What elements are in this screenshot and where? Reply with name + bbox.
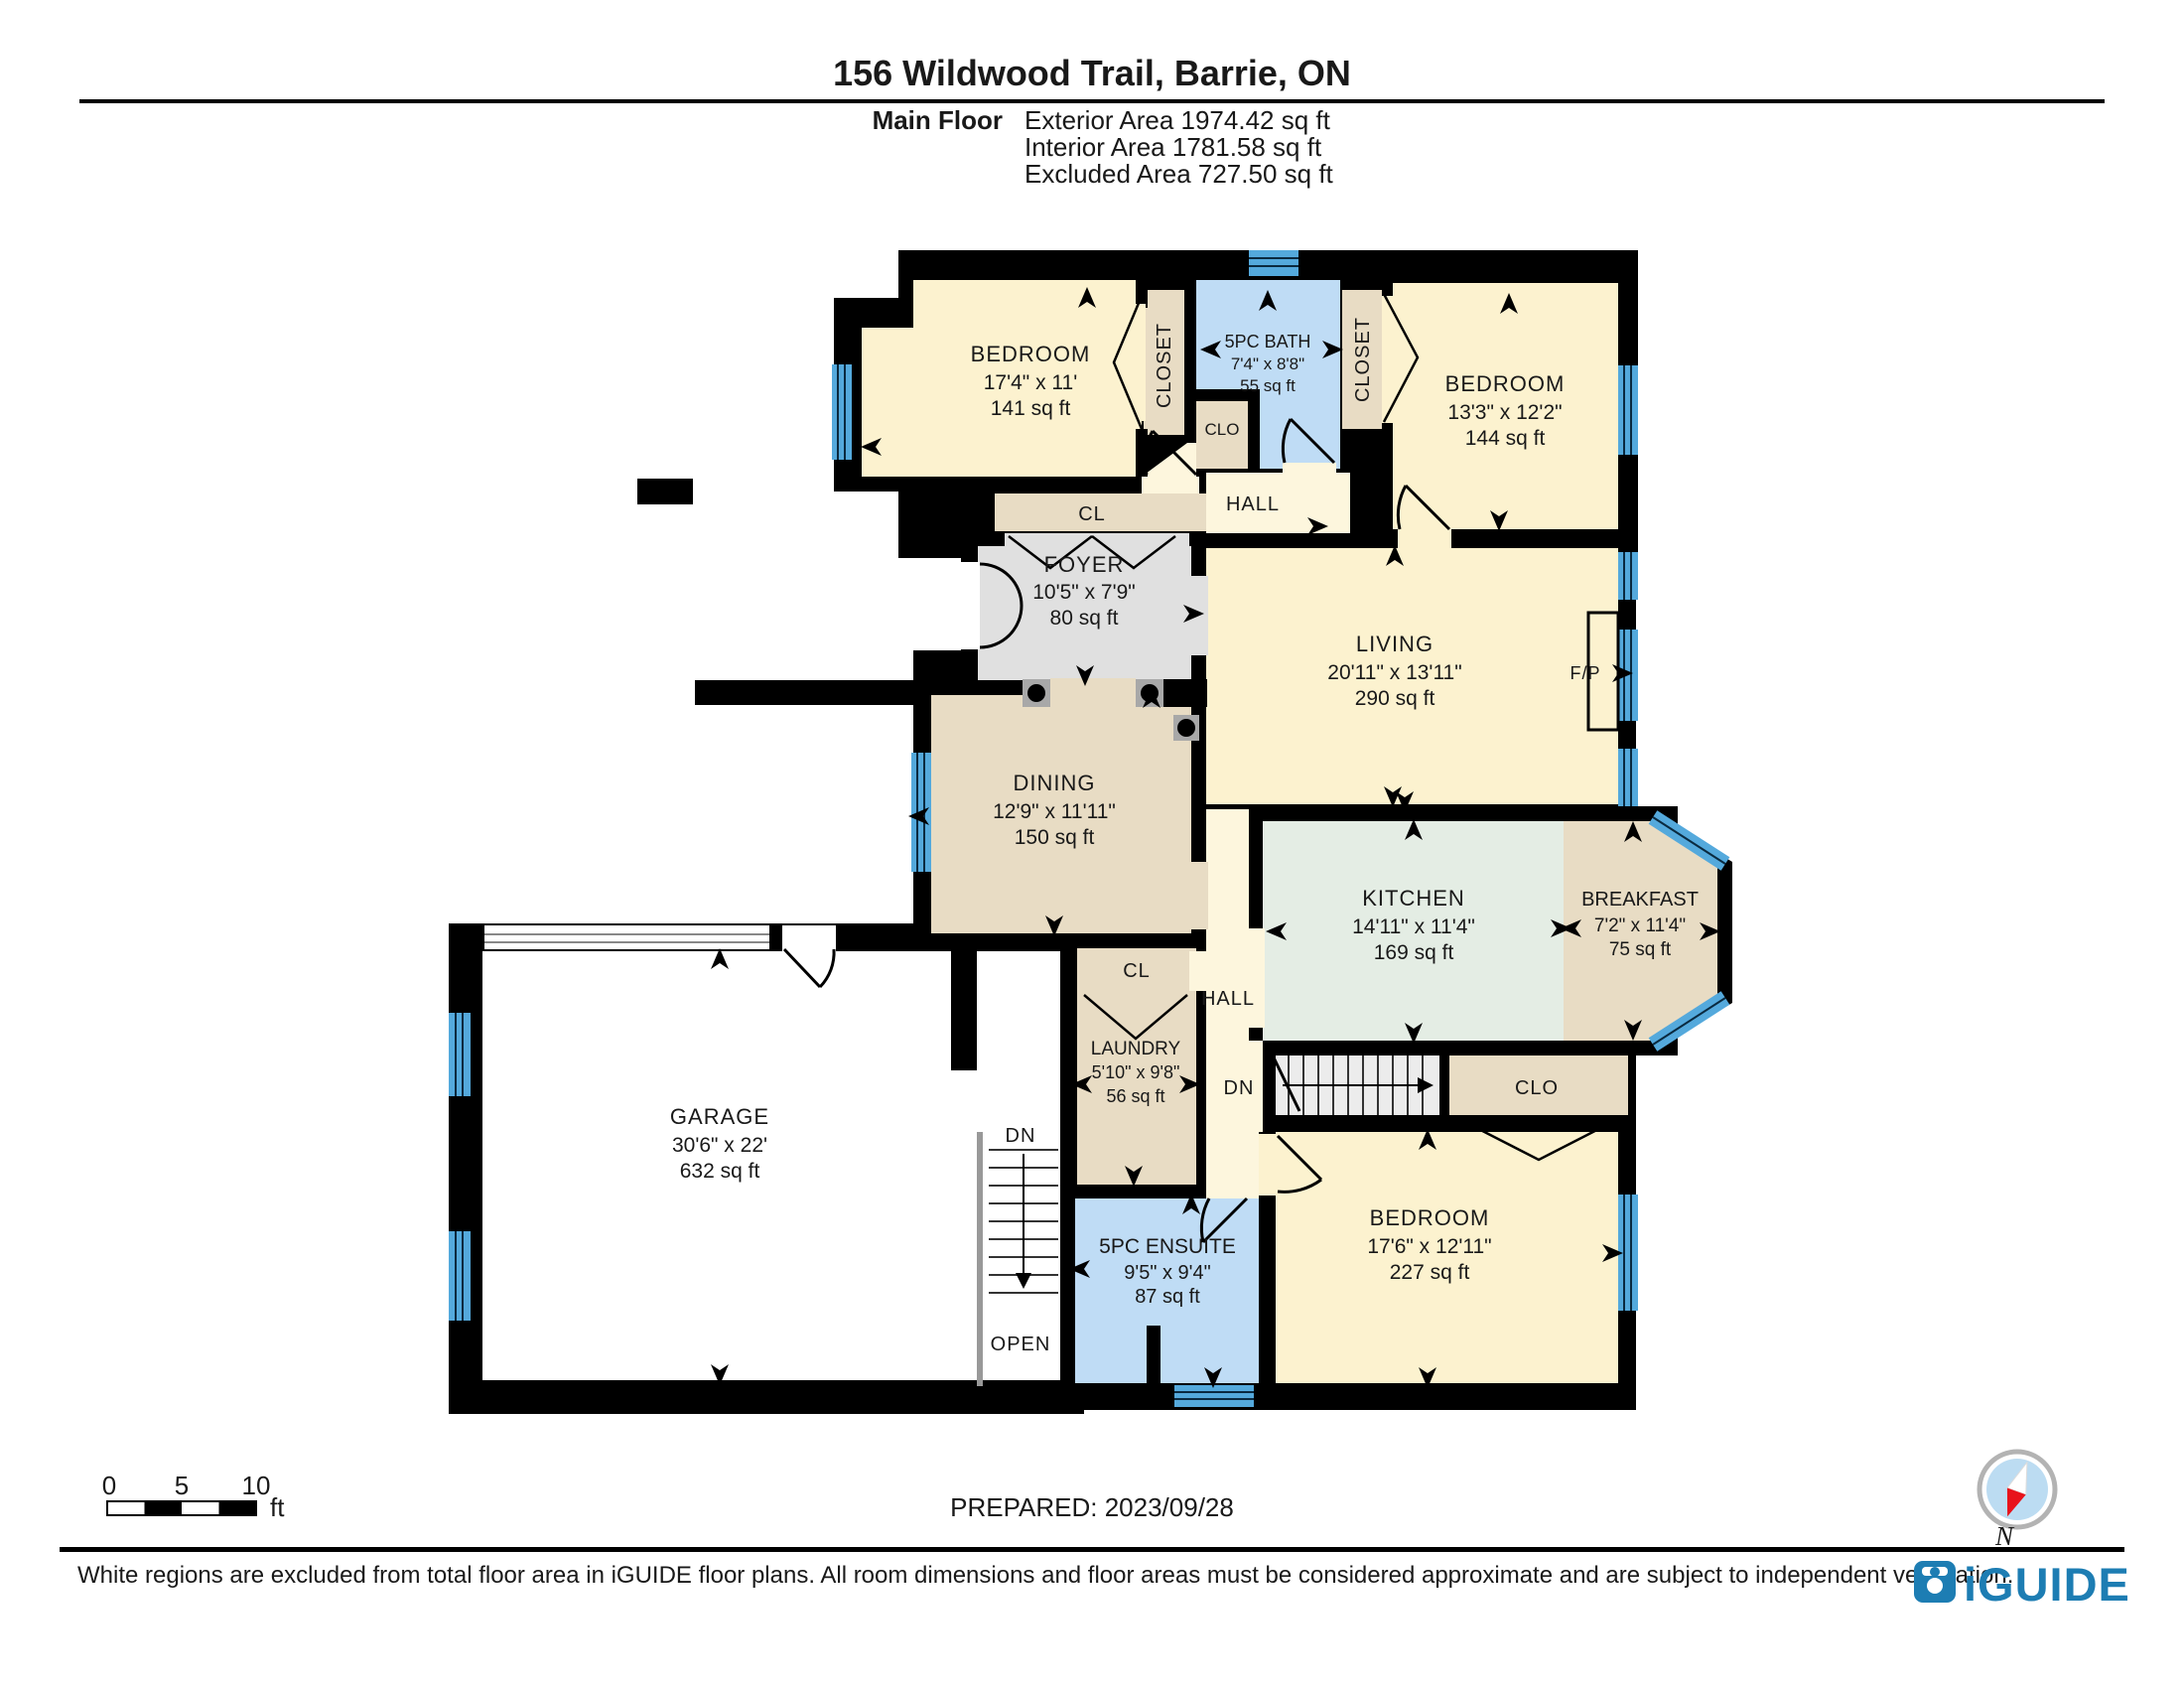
open-label: OPEN [991,1334,1051,1355]
north-label: N [1994,1521,2015,1551]
bedroom-1-area: 141 sq ft [991,397,1071,420]
scale-unit: ft [270,1492,285,1522]
compass: N [1979,1452,2055,1551]
bath-label: 5PC BATH [1225,332,1311,352]
disclaimer-text: White regions are excluded from total fl… [77,1562,2013,1589]
floor-plan-page: 156 Wildwood Trail, Barrie, ON Main Floo… [0,0,2184,1688]
foyer-area: 80 sq ft [1050,607,1119,630]
foyer-label: FOYER [1044,552,1125,577]
header: 156 Wildwood Trail, Barrie, ON Main Floo… [79,53,2105,189]
ensuite-area: 87 sq ft [1135,1286,1200,1308]
bedroom-2-label: BEDROOM [1445,371,1566,396]
living-dims: 20'11" x 13'11" [1327,661,1461,684]
hall-lower-label: HALL [1201,988,1255,1010]
clo-bath-label: CLO [1205,420,1240,439]
laundry-label: LAUNDRY [1091,1039,1181,1059]
floor-label: Main Floor [873,105,1003,135]
stair-rail [977,1132,983,1386]
closet-right-label: CLOSET [1352,317,1374,402]
scale-end: 10 [242,1471,271,1500]
window [449,1013,471,1096]
bedroom-1-label: BEDROOM [971,342,1091,366]
window [1618,552,1638,600]
kitchen-dims: 14'11" x 11'4" [1352,915,1475,938]
camera-arrow [711,948,729,969]
header-rule [79,99,2105,103]
window [1618,749,1638,806]
garage-door-arc [820,949,834,987]
prepared-date: PREPARED: 2023/09/28 [950,1492,1234,1522]
bedroom-1-dims: 17'4" x 11' [984,371,1077,394]
clo-lower-label: CLO [1515,1077,1559,1099]
bedroom-1-floor [862,328,915,477]
page-title: 156 Wildwood Trail, Barrie, ON [833,53,1351,93]
dining-area: 150 sq ft [1015,826,1095,849]
window [1174,1385,1254,1407]
fireplace-label: F/P [1570,663,1600,683]
laundry-dims: 5'10" x 9'8" [1092,1062,1180,1082]
breakfast-area: 75 sq ft [1609,939,1672,960]
window [1249,250,1298,276]
iguide-logo: iGUIDE [1914,1558,2130,1611]
window [832,364,852,460]
foyer-dims: 10'5" x 7'9" [1032,581,1136,604]
dining-dims: 12'9" x 11'11" [993,800,1116,823]
ensuite-dims: 9'5" x 9'4" [1124,1262,1210,1284]
stair-direction-arrow [1016,1273,1031,1289]
hall-upper-label: HALL [1226,493,1280,515]
garage-area: 632 sq ft [680,1160,760,1183]
window [449,1231,471,1321]
breakfast-label: BREAKFAST [1581,889,1699,911]
dining-label: DINING [1014,771,1096,795]
laundry-area: 56 sq ft [1106,1086,1164,1106]
living-label: LIVING [1356,632,1433,656]
kitchen-label: KITCHEN [1362,886,1465,911]
living-area: 290 sq ft [1355,687,1435,710]
scale-start: 0 [102,1471,116,1500]
window [1618,365,1638,455]
stat-interior: Interior Area 1781.58 sq ft [1024,132,1322,162]
bath-dims: 7'4" x 8'8" [1231,354,1304,373]
cl-lower-label: CL [1123,960,1151,982]
bedroom-3-dims: 17'6" x 12'11" [1367,1235,1491,1258]
footer-rule [60,1547,2124,1552]
breakfast-dims: 7'2" x 11'4" [1594,915,1686,936]
room-floors [862,280,1717,1383]
stat-excluded: Excluded Area 727.50 sq ft [1024,159,1334,189]
scale-bar: 0 5 10 ft [102,1471,285,1522]
cl-upper-label: CL [1078,503,1106,525]
bedroom-2-area: 144 sq ft [1465,427,1546,450]
kitchen-area: 169 sq ft [1374,941,1454,964]
dn-left-label: DN [1006,1125,1036,1147]
dn-right-label: DN [1224,1077,1255,1099]
garage-label: GARAGE [670,1104,769,1129]
iguide-logo-text: iGUIDE [1964,1558,2130,1611]
bedroom-3-area: 227 sq ft [1390,1261,1470,1284]
stat-exterior: Exterior Area 1974.42 sq ft [1024,105,1331,135]
scale-mid: 5 [175,1471,189,1500]
bedroom-2-dims: 13'3" x 12'2" [1447,401,1562,424]
garage-dims: 30'6" x 22' [672,1134,767,1157]
garage-door-leaf [784,949,820,987]
closet-left-label: CLOSET [1154,323,1175,408]
ensuite-label: 5PC ENSUITE [1099,1235,1236,1258]
bedroom-3-label: BEDROOM [1370,1205,1490,1230]
footer: 0 5 10 ft PREPARED: 2023/09/28 N White r… [60,1452,2130,1611]
bath-area: 55 sq ft [1240,376,1296,395]
